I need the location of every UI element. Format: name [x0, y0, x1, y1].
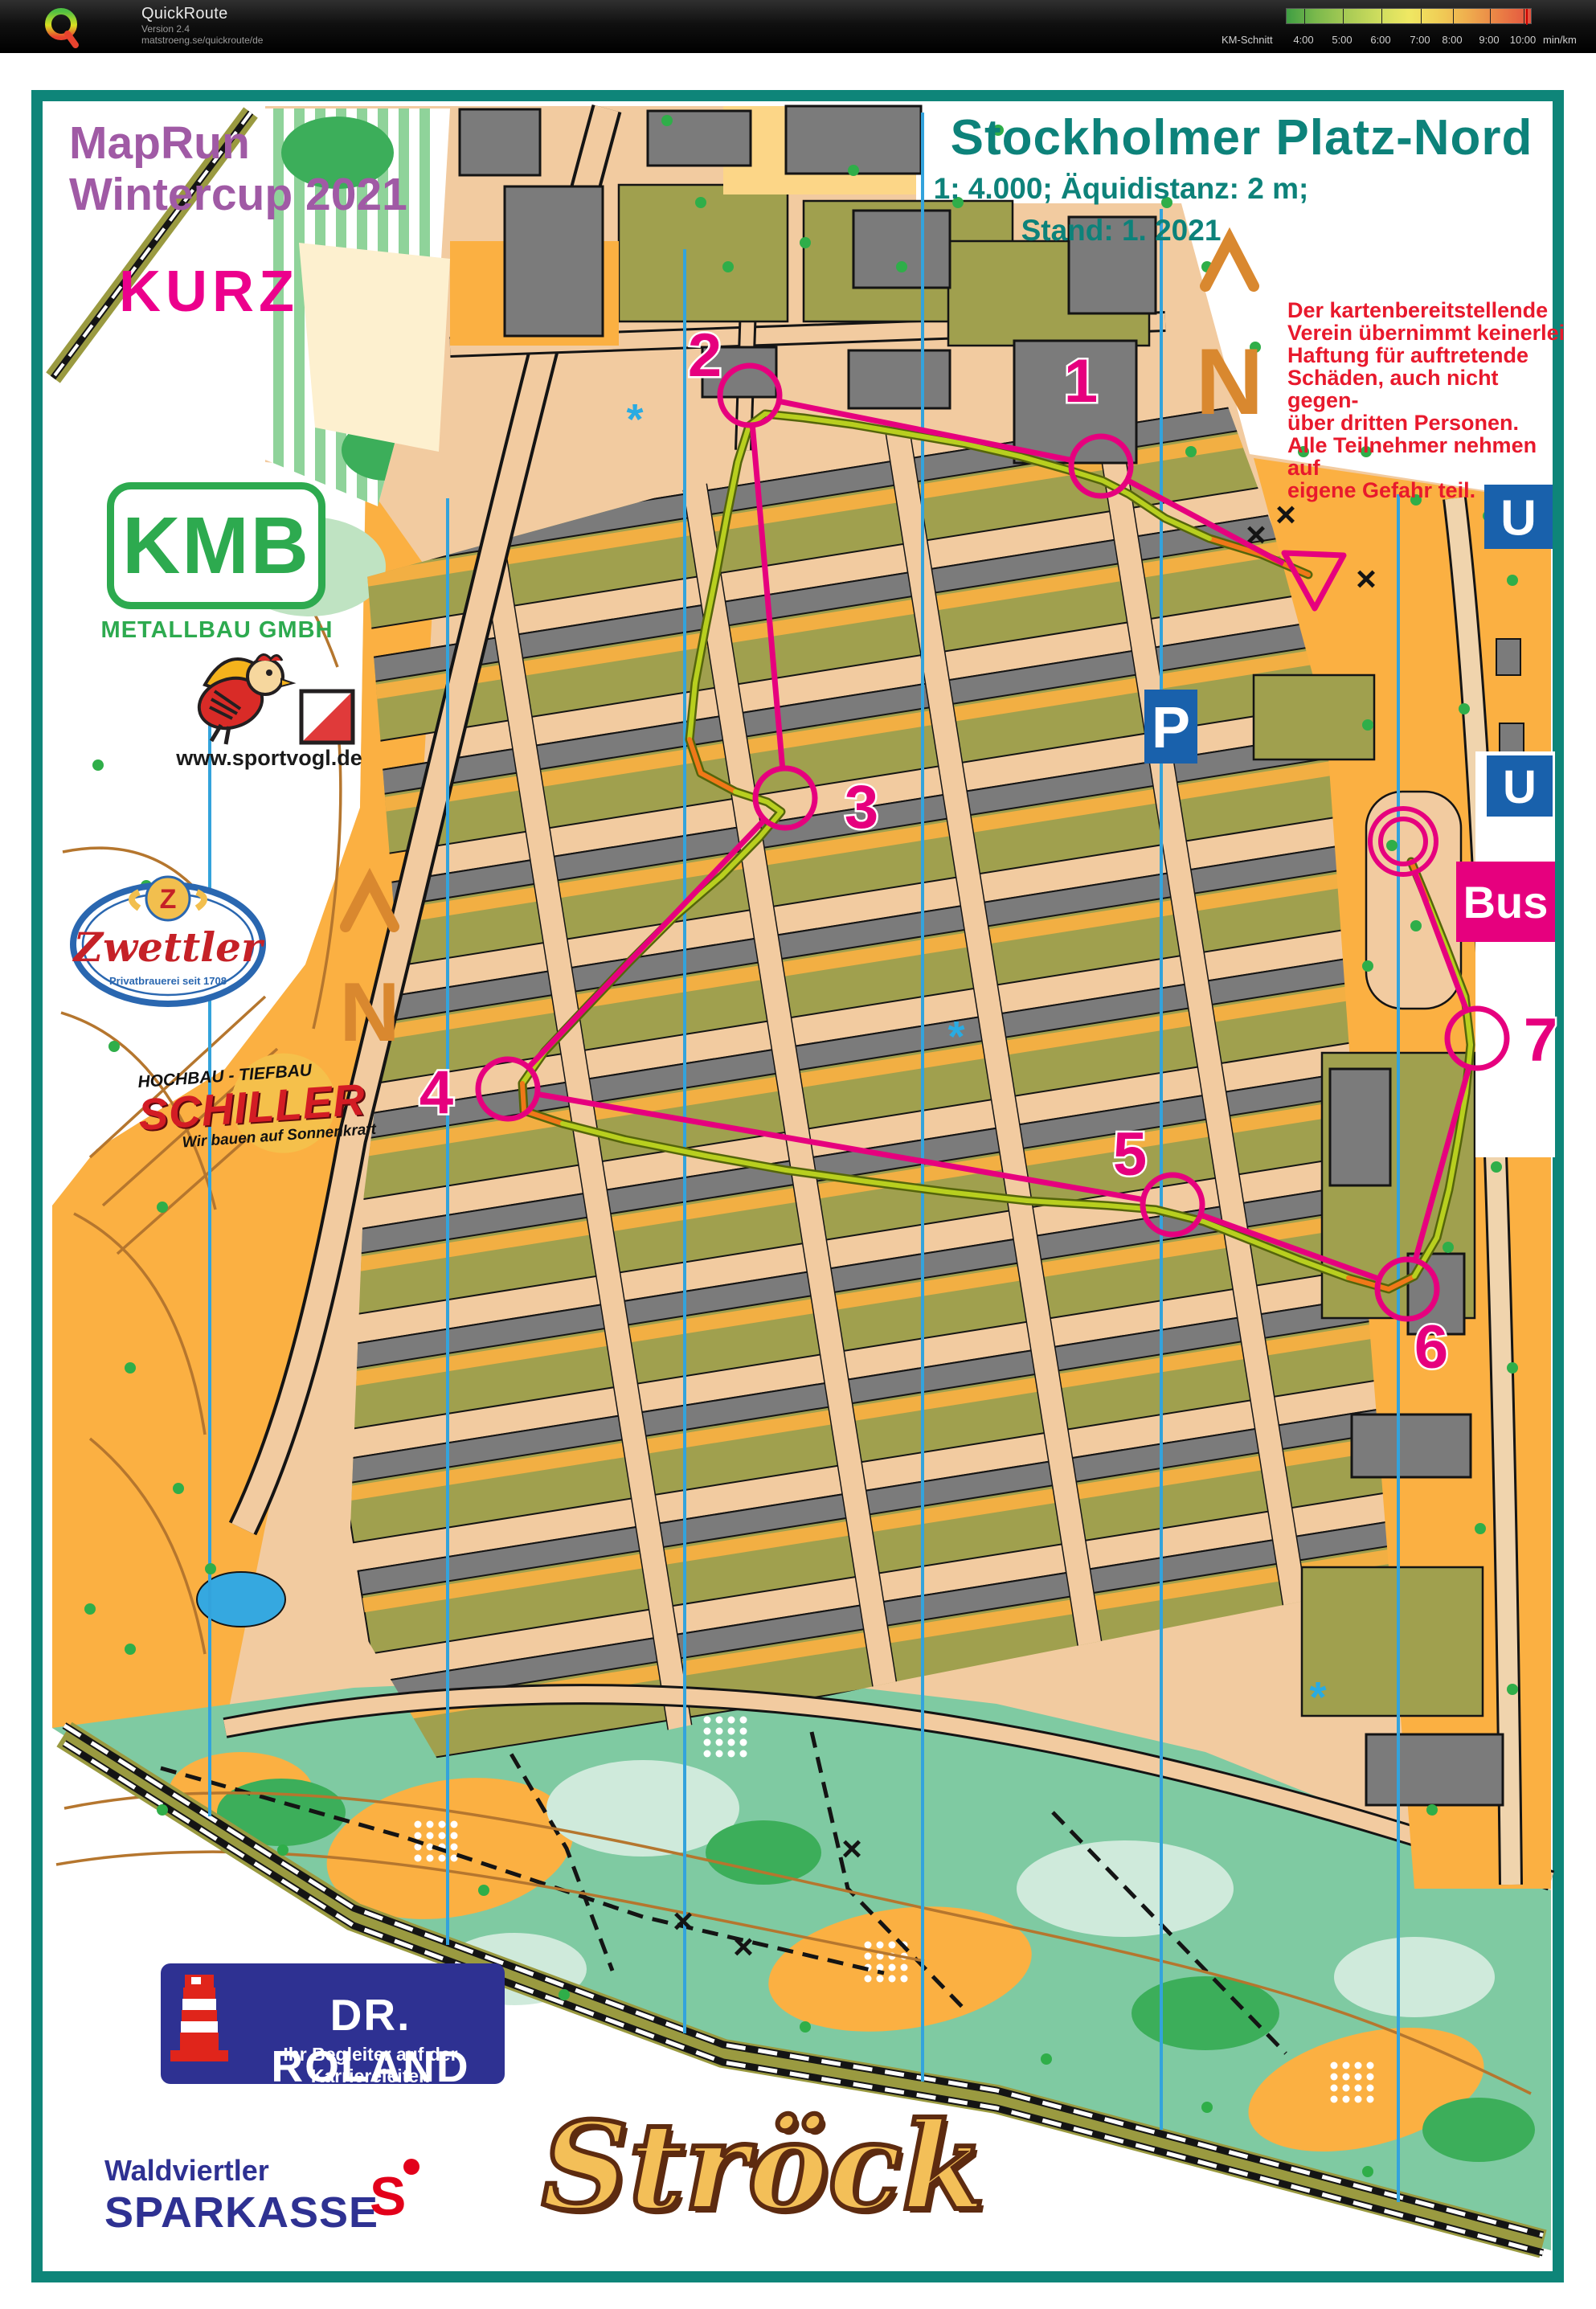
pace-tick [1453, 9, 1454, 25]
pace-tick-label: 4:00 [1293, 34, 1313, 46]
sparkasse-s-icon: S [370, 2165, 406, 2228]
stroeck-logo: Ströck [526, 2096, 1001, 2237]
pace-tick-label: 7:00 [1410, 34, 1430, 46]
control-number-1: 1 [1064, 347, 1098, 416]
svg-text:Zwettler: Zwettler [72, 923, 265, 971]
app-titlebar: QuickRoute Version 2.4 matstroeng.se/qui… [0, 0, 1596, 53]
disclaimer-text: Der kartenbereitstellendeVerein übernimm… [1287, 299, 1569, 502]
app-version: Version 2.4 [141, 23, 263, 35]
svg-text:×: × [673, 1902, 694, 1941]
svg-text:×: × [733, 1927, 754, 1967]
app-url[interactable]: matstroeng.se/quickroute/de [141, 35, 263, 46]
pace-gradient-bar [1286, 8, 1532, 24]
event-title: MapRun Wintercup 2021 [69, 117, 407, 220]
pace-tick-label: 6:00 [1370, 34, 1390, 46]
control-number-4: 4 [419, 1058, 453, 1127]
schiller-logo: HOCHBAU - TIEFBAU SCHILLER Wir bauen auf… [132, 1046, 403, 1169]
north-arrow-letter: N [1196, 329, 1264, 434]
pace-tick [1490, 9, 1491, 25]
pace-tick-label: 5:00 [1332, 34, 1352, 46]
gps-track-segment [522, 1083, 524, 1111]
pace-legend-label: KM-Schnitt [1222, 34, 1273, 46]
kmb-logo: KMB [107, 482, 325, 609]
pace-tick [1524, 9, 1524, 25]
quickroute-window: { "app": { "name": "QuickRoute", "versio… [0, 0, 1596, 2309]
lighthouse-icon [161, 1963, 237, 2084]
sportvogl-logo [173, 635, 374, 755]
control-number-2: 2 [688, 321, 722, 390]
pace-tick [1343, 9, 1344, 25]
control-number-5: 5 [1113, 1120, 1147, 1189]
pace-tick [1421, 9, 1422, 25]
pace-legend-unit: min/km [1543, 34, 1577, 46]
svg-text:×: × [1356, 559, 1377, 599]
pace-tick-label: 8:00 [1442, 34, 1462, 46]
svg-text:×: × [841, 1829, 862, 1869]
svg-text:*: * [947, 1013, 964, 1061]
parking-label-text: P [1152, 696, 1190, 760]
svg-text:*: * [1309, 1673, 1326, 1722]
pace-marker [1526, 9, 1528, 25]
map-stand-line: Stand: 1. 2021 [884, 214, 1358, 248]
svg-text:Privatbrauerei seit 1708: Privatbrauerei seit 1708 [109, 975, 227, 987]
control-number-7: 7 [1524, 1006, 1557, 1075]
map-title: Stockholmer Platz-Nord [924, 109, 1559, 166]
app-name: QuickRoute [141, 5, 263, 23]
svg-text:*: * [626, 395, 643, 444]
control-number-6: 6 [1414, 1313, 1448, 1382]
map-scale-line: 1: 4.000; Äquidistanz: 2 m; [884, 172, 1358, 206]
ubahn-south-label-text: U [1503, 761, 1537, 813]
course-name: KURZ [119, 259, 299, 325]
sparkasse-dot-icon [403, 2159, 419, 2175]
dr-roland-logo: DR. ROLAND Ihr Begleiter auf der Karrier… [161, 1963, 505, 2084]
svg-text:Z: Z [160, 884, 177, 915]
pace-tick [1381, 9, 1382, 25]
quickroute-logo-icon [42, 5, 84, 50]
pace-tick-label: 10:00 [1510, 34, 1537, 46]
bus-label-text: Bus [1463, 877, 1549, 927]
pace-tick-label: 9:00 [1479, 34, 1499, 46]
control-number-3: 3 [845, 773, 878, 841]
pace-tick [1304, 9, 1305, 25]
sparkasse-logo: Waldviertler SPARKASSE S [104, 2154, 458, 2237]
zwettler-logo: Z Zwettler Privatbrauerei seit 1708 [68, 868, 269, 1009]
sportvogl-url[interactable]: www.sportvogl.de [161, 746, 378, 771]
